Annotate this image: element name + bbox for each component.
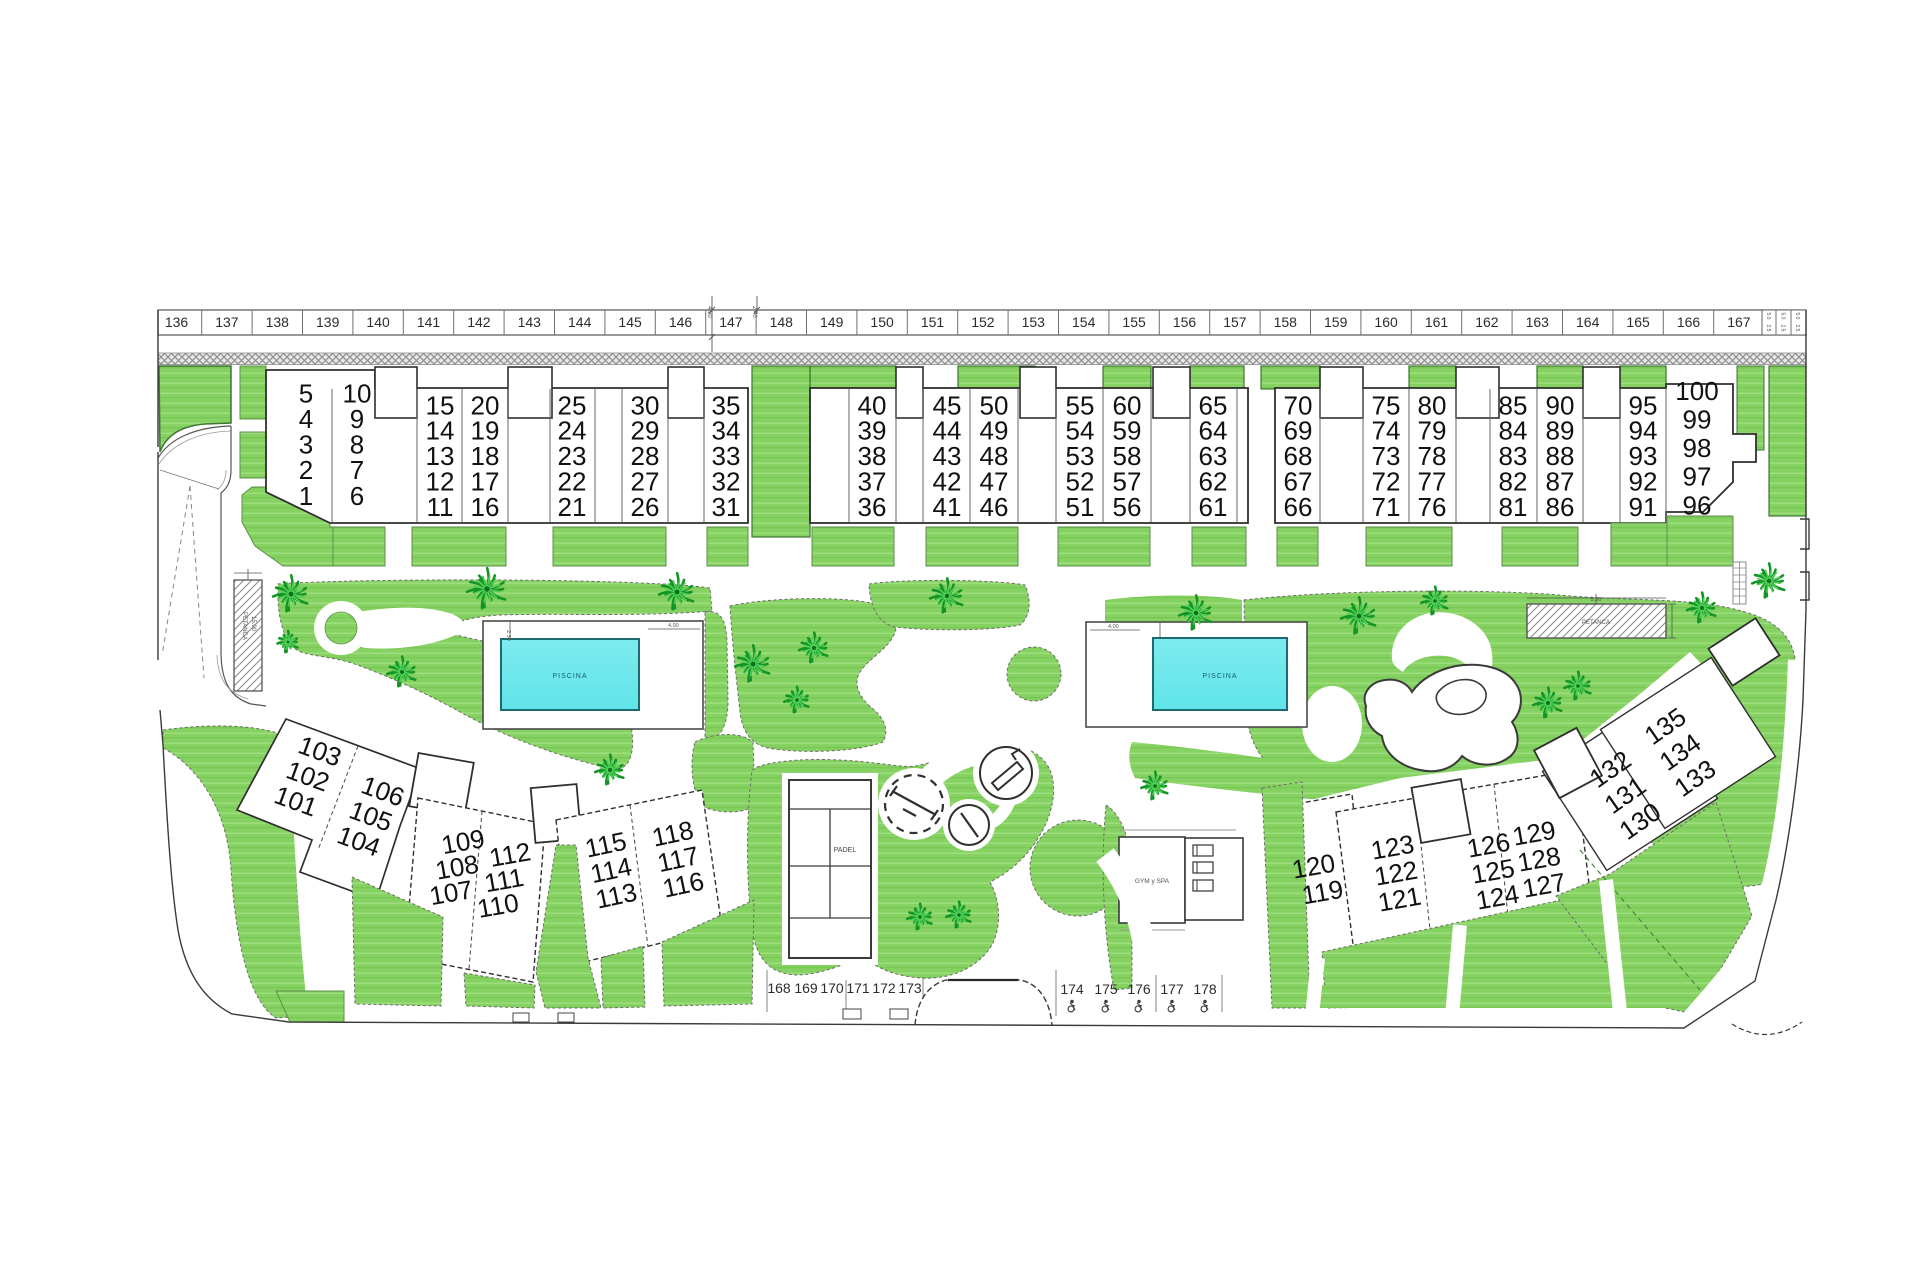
svg-text:169: 169 bbox=[794, 980, 818, 996]
svg-text:158: 158 bbox=[1274, 314, 1298, 330]
svg-text:PADEL: PADEL bbox=[834, 847, 857, 854]
svg-text:16: 16 bbox=[471, 492, 500, 522]
svg-text:2.30: 2.30 bbox=[505, 630, 511, 641]
svg-text:46: 46 bbox=[980, 492, 1009, 522]
svg-text:6: 6 bbox=[350, 481, 364, 511]
svg-text:71: 71 bbox=[1372, 492, 1401, 522]
svg-text:143: 143 bbox=[518, 314, 542, 330]
svg-text:153: 153 bbox=[1022, 314, 1046, 330]
svg-text:5.0: 5.0 bbox=[1765, 313, 1771, 320]
svg-text:PETANCA: PETANCA bbox=[1582, 620, 1610, 626]
svg-text:147: 147 bbox=[719, 314, 743, 330]
svg-text:165: 165 bbox=[1626, 314, 1650, 330]
svg-text:177: 177 bbox=[1160, 981, 1184, 997]
svg-text:152: 152 bbox=[971, 314, 995, 330]
svg-text:PISCINA: PISCINA bbox=[552, 673, 587, 680]
svg-text:173: 173 bbox=[898, 980, 922, 996]
svg-text:2.5: 2.5 bbox=[1794, 325, 1800, 332]
svg-text:159: 159 bbox=[1324, 314, 1348, 330]
svg-text:172: 172 bbox=[872, 980, 896, 996]
svg-text:1: 1 bbox=[299, 481, 313, 511]
svg-text:5.0: 5.0 bbox=[1780, 313, 1786, 320]
svg-text:155: 155 bbox=[1122, 314, 1146, 330]
svg-text:164: 164 bbox=[1576, 314, 1600, 330]
svg-text:15.00: 15.00 bbox=[250, 616, 256, 632]
svg-text:156: 156 bbox=[1173, 314, 1197, 330]
svg-text:66: 66 bbox=[1284, 492, 1313, 522]
svg-text:98: 98 bbox=[1683, 433, 1712, 463]
svg-text:26: 26 bbox=[631, 492, 660, 522]
svg-text:51: 51 bbox=[1066, 492, 1095, 522]
svg-text:151: 151 bbox=[921, 314, 945, 330]
svg-text:139: 139 bbox=[316, 314, 340, 330]
svg-text:100: 100 bbox=[1675, 376, 1718, 406]
svg-text:163: 163 bbox=[1526, 314, 1550, 330]
svg-text:2.40: 2.40 bbox=[751, 306, 757, 318]
svg-text:36: 36 bbox=[858, 492, 887, 522]
svg-text:5.0: 5.0 bbox=[1794, 313, 1800, 320]
svg-text:81: 81 bbox=[1499, 492, 1528, 522]
svg-text:97: 97 bbox=[1683, 462, 1712, 492]
svg-text:141: 141 bbox=[417, 314, 441, 330]
svg-text:154: 154 bbox=[1072, 314, 1096, 330]
svg-text:140: 140 bbox=[366, 314, 390, 330]
svg-text:99: 99 bbox=[1683, 405, 1712, 435]
svg-text:170: 170 bbox=[820, 980, 844, 996]
svg-text:149: 149 bbox=[820, 314, 844, 330]
svg-text:145: 145 bbox=[618, 314, 642, 330]
svg-text:157: 157 bbox=[1223, 314, 1247, 330]
svg-text:161: 161 bbox=[1425, 314, 1449, 330]
svg-text:4.00: 4.00 bbox=[1108, 624, 1119, 630]
svg-text:174: 174 bbox=[1060, 981, 1084, 997]
svg-text:144: 144 bbox=[568, 314, 592, 330]
svg-text:136: 136 bbox=[165, 314, 189, 330]
svg-text:148: 148 bbox=[770, 314, 794, 330]
svg-text:4.00: 4.00 bbox=[668, 623, 679, 629]
svg-text:4.50: 4.50 bbox=[706, 306, 712, 318]
svg-text:138: 138 bbox=[266, 314, 290, 330]
svg-text:76: 76 bbox=[1418, 492, 1447, 522]
svg-text:91: 91 bbox=[1629, 492, 1658, 522]
svg-text:2.5: 2.5 bbox=[1780, 325, 1786, 332]
svg-text:31: 31 bbox=[712, 492, 741, 522]
svg-text:41: 41 bbox=[933, 492, 962, 522]
svg-text:168: 168 bbox=[767, 980, 791, 996]
svg-text:5.00: 5.00 bbox=[1591, 597, 1602, 603]
svg-text:146: 146 bbox=[669, 314, 693, 330]
svg-text:162: 162 bbox=[1475, 314, 1499, 330]
svg-text:PISCINA: PISCINA bbox=[1202, 673, 1237, 680]
svg-text:175: 175 bbox=[1094, 981, 1118, 997]
svg-text:150: 150 bbox=[870, 314, 894, 330]
svg-text:178: 178 bbox=[1193, 981, 1217, 997]
svg-text:PETANCA: PETANCA bbox=[241, 612, 247, 640]
svg-text:2.5: 2.5 bbox=[1765, 325, 1771, 332]
svg-text:11: 11 bbox=[427, 492, 454, 522]
svg-text:137: 137 bbox=[215, 314, 239, 330]
svg-text:86: 86 bbox=[1546, 492, 1575, 522]
svg-text:160: 160 bbox=[1374, 314, 1398, 330]
svg-text:61: 61 bbox=[1199, 492, 1228, 522]
svg-text:142: 142 bbox=[467, 314, 491, 330]
svg-text:21: 21 bbox=[558, 492, 587, 522]
svg-text:56: 56 bbox=[1113, 492, 1142, 522]
svg-text:GYM y SPA: GYM y SPA bbox=[1135, 878, 1170, 885]
svg-text:171: 171 bbox=[846, 980, 870, 996]
svg-text:167: 167 bbox=[1727, 314, 1751, 330]
svg-text:166: 166 bbox=[1677, 314, 1701, 330]
svg-text:176: 176 bbox=[1127, 981, 1151, 997]
